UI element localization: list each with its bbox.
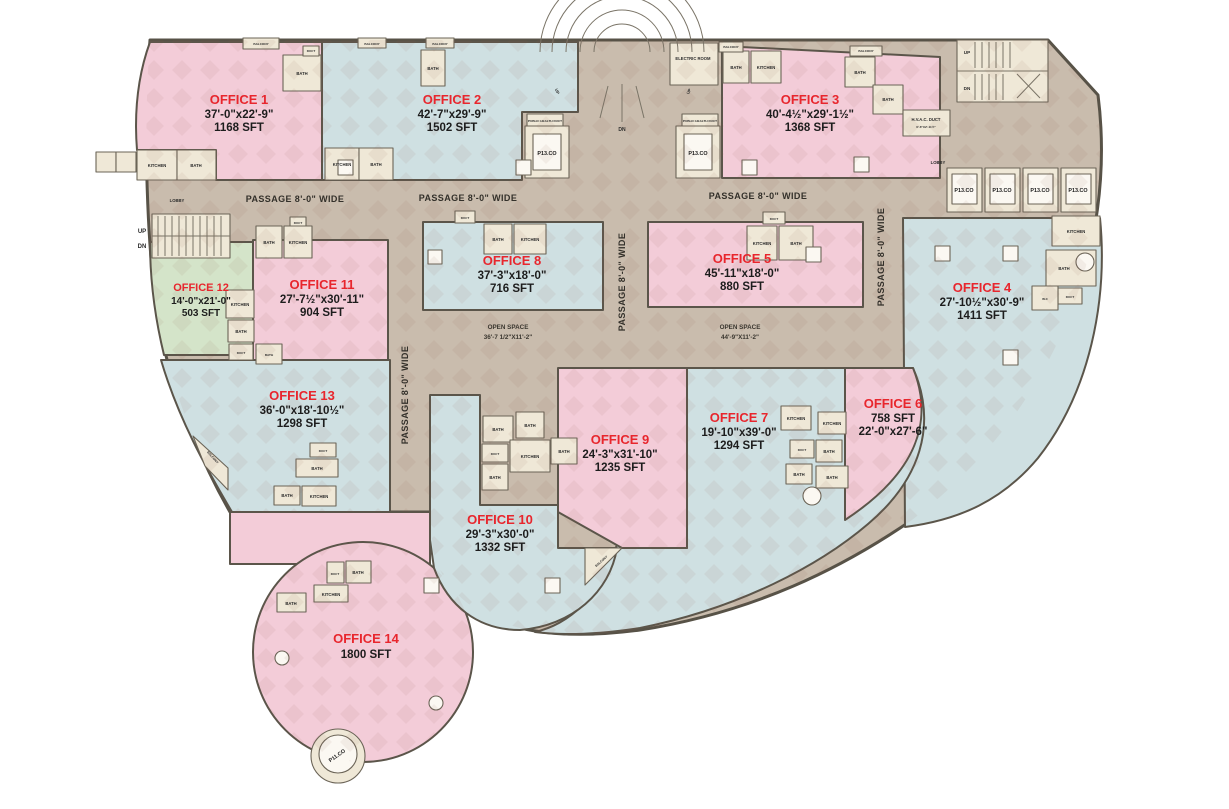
balcony-label: BALCONY: [432, 42, 448, 46]
office-area: 1235 SFT: [595, 462, 646, 474]
bath-label: BATH: [427, 66, 438, 71]
office-name: OFFICE 1: [210, 92, 269, 107]
bath-label: BATH: [492, 427, 503, 432]
passage-label-1: PASSAGE 8'-0" WIDE: [246, 194, 344, 204]
office-area: 1298 SFT: [277, 418, 328, 430]
office-dims: 22'-0"x27'-6": [859, 426, 928, 438]
bath-label: BATH: [352, 570, 363, 575]
office-area: 1332 SFT: [475, 542, 526, 554]
office-area: 880 SFT: [720, 281, 764, 293]
office-name: OFFICE 6: [864, 396, 923, 411]
kitchen-label: KITCHEN: [310, 494, 329, 499]
office-area: 1168 SFT: [214, 122, 264, 134]
bath-label: BATH: [285, 601, 296, 606]
entry-step: [96, 152, 116, 172]
bath-label: BATH: [311, 466, 322, 471]
bath-label: BATH: [524, 423, 535, 428]
kitchen-label: KITCHEN: [521, 237, 540, 242]
bath-label: BATH: [826, 475, 837, 480]
office-dims: 29'-3"x30'-0": [466, 529, 535, 541]
bath-label: BATH: [263, 240, 274, 245]
office-name: OFFICE 9: [591, 432, 650, 447]
bath-label: BATH: [492, 237, 503, 242]
balcony-label: BALCONY: [723, 45, 739, 49]
duct-label: DUCT: [461, 216, 470, 220]
office-area: 716 SFT: [490, 283, 534, 295]
electric-room-label: ELECTRIC ROOM: [675, 56, 711, 61]
office-area: 1502 SFT: [427, 122, 478, 134]
bath-label: BATH: [489, 475, 500, 480]
office-dims: 37'-3"x18'-0": [478, 270, 547, 282]
bath-label: BATH: [854, 70, 865, 75]
passage-label-2: PASSAGE 8'-0" WIDE: [419, 193, 517, 203]
floor-plan-svg: OFFICE 1 37'-0"x22'-9" 1168 SFT OFFICE 2…: [0, 0, 1229, 809]
lift-label: P13.CO: [992, 188, 1011, 194]
office-dims: 27'-10½"x30'-9": [940, 297, 1025, 309]
office-area: 1411 SFT: [957, 310, 1007, 322]
dn-label: DN: [138, 244, 147, 250]
duct-label: DUCT: [237, 351, 246, 355]
office-name: OFFICE 4: [953, 280, 1012, 295]
office-dims: 24'-3"x31'-10": [582, 449, 657, 461]
hvac-dims: 6'-6"X2'-11½": [916, 125, 936, 129]
duct-label: DUCT: [1066, 295, 1075, 299]
office-name: OFFICE 2: [423, 92, 482, 107]
bath-label: BATH: [281, 493, 292, 498]
passage-label-3: PASSAGE 8'-0" WIDE: [709, 191, 807, 201]
dn-label: DN: [964, 86, 971, 91]
lift-label: P13.CO: [537, 151, 556, 157]
office-area: 1294 SFT: [714, 440, 765, 452]
office-dims: 19'-10"x39'-0": [701, 427, 776, 439]
duct-label: DUCT: [770, 217, 779, 221]
balcony-label: BALCONY: [253, 42, 269, 46]
bath-label: BATH: [265, 353, 274, 357]
kitchen-label: KITCHEN: [333, 162, 352, 167]
dn-label: DN: [618, 127, 626, 133]
open-space-dims: 44'-9"X11'-2": [721, 334, 759, 341]
lobby-label: LOBBY: [931, 160, 946, 165]
bath-label: BATH: [790, 241, 801, 246]
office-dims: 42'-7"x29'-9": [418, 109, 487, 121]
kitchen-label: KITCHEN: [823, 421, 842, 426]
office-name: OFFICE 10: [467, 512, 533, 527]
office-dims: 37'-0"x22'-9": [205, 109, 274, 121]
lift-label: P13.CO: [1030, 188, 1049, 194]
wc-label: W.C: [1042, 297, 1049, 301]
balcony-label: BALCONY: [364, 42, 380, 46]
up-label: UP: [964, 50, 970, 55]
office-name: OFFICE 14: [333, 631, 400, 646]
bath-label: BATH: [558, 449, 569, 454]
lift-label: P13.CO: [954, 188, 973, 194]
office-name: OFFICE 11: [289, 277, 354, 292]
kitchen-label: KITCHEN: [521, 454, 540, 459]
entry-step: [116, 152, 136, 172]
office-name: OFFICE 3: [781, 92, 840, 107]
bath-label: BATH: [1058, 266, 1069, 271]
passage-label-left-vertical: PASSAGE 8'-0" WIDE: [400, 346, 410, 444]
duct-label: DUCT: [294, 221, 303, 225]
office-2-label: OFFICE 2 42'-7"x29'-9" 1502 SFT: [418, 92, 487, 134]
office-area: 758 SFT: [871, 413, 915, 425]
bath-label: BATH: [235, 329, 246, 334]
hvac-name: H.V.A.C. DUCT: [912, 117, 941, 122]
open-space-title: OPEN SPACE: [720, 324, 761, 331]
open-space-dims: 36'-7 1/2"X11'-2": [484, 334, 533, 341]
bath-label: BATH: [823, 449, 834, 454]
up-label: UP: [138, 229, 146, 235]
office-dims: 27'-7½"x30'-11": [280, 294, 364, 306]
office-10-label: OFFICE 10 29'-3"x30'-0" 1332 SFT: [466, 512, 535, 554]
duct-label: DUCT: [331, 572, 340, 576]
kitchen-label: KITCHEN: [753, 241, 772, 246]
passage-label-right-vertical: PASSAGE 8'-0" WIDE: [876, 208, 886, 306]
kitchen-label: KITCHEN: [231, 302, 250, 307]
office-dims: 36'-0"x18'-10½": [260, 405, 345, 417]
open-space-title: OPEN SPACE: [488, 324, 529, 331]
public-health-duct-label: PUBLIC HEALTH DUCT: [528, 119, 562, 123]
kitchen-label: KITCHEN: [787, 416, 806, 421]
office-name: OFFICE 13: [269, 388, 335, 403]
kitchen-label: KITCHEN: [322, 592, 341, 597]
office-dims: 14'-0"x21'-0": [171, 296, 231, 307]
duct-label: DUCT: [798, 448, 807, 452]
bath-label: BATH: [370, 162, 381, 167]
passage-label-center-vertical: PASSAGE 8'-0" WIDE: [617, 233, 627, 331]
kitchen-label: KITCHEN: [289, 240, 308, 245]
office-name: OFFICE 12: [173, 282, 229, 294]
office-area: 1800 SFT: [341, 649, 392, 661]
office-dims: 40'-4½"x29'-1½": [766, 109, 854, 121]
bath-label: BATH: [793, 472, 804, 477]
floor-plan-page: OFFICE 1 37'-0"x22'-9" 1168 SFT OFFICE 2…: [0, 0, 1229, 809]
bath-label: BATH: [190, 163, 201, 168]
office-dims: 45'-11"x18'-0": [705, 268, 780, 280]
bath-label: BATH: [730, 65, 741, 70]
office-name: OFFICE 5: [713, 251, 772, 266]
lobby-label: LOBBY: [170, 198, 185, 203]
kitchen-label: KITCHEN: [1067, 229, 1086, 234]
office-area: 1368 SFT: [785, 122, 836, 134]
kitchen-label: KITCHEN: [757, 65, 776, 70]
office-area: 904 SFT: [300, 307, 344, 319]
office-name: OFFICE 7: [710, 410, 769, 425]
bath-label: BATH: [882, 97, 893, 102]
lift-label: P13.CO: [688, 151, 707, 157]
public-health-duct-label: PUBLIC HEALTH DUCT: [683, 119, 717, 123]
kitchen-label: KITCHEN: [148, 163, 167, 168]
duct-label: DUCT: [307, 49, 316, 53]
duct-label: DUCT: [319, 449, 328, 453]
bath-label: BATH: [296, 71, 307, 76]
office-name: OFFICE 8: [483, 253, 542, 268]
duct-label: DUCT: [491, 452, 500, 456]
office-1-label: OFFICE 1 37'-0"x22'-9" 1168 SFT: [205, 92, 274, 134]
balcony-label: BALCONY: [858, 49, 874, 53]
lift-label: P13.CO: [1068, 188, 1087, 194]
office-area: 503 SFT: [182, 308, 220, 319]
